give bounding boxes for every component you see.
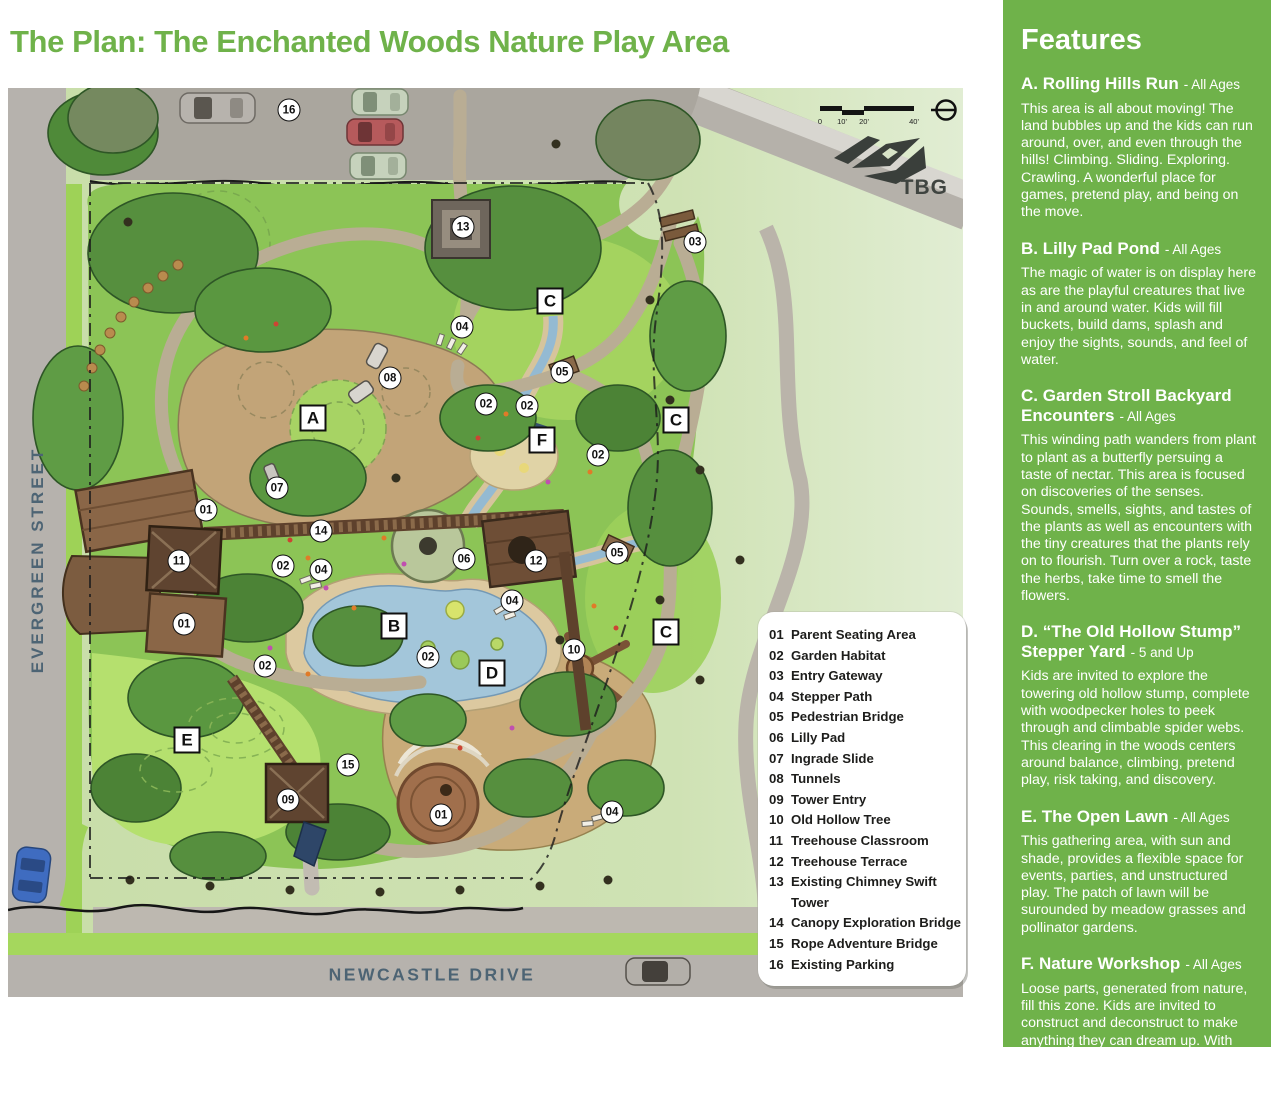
- map-marker-10: 10: [563, 639, 586, 662]
- map-marker-06: 06: [453, 548, 476, 571]
- legend-item-03: 03Entry Gateway: [769, 666, 958, 687]
- feature-description: Kids are invited to explore the towering…: [1021, 668, 1257, 789]
- legend-item-07: 07Ingrade Slide: [769, 749, 958, 770]
- feature-description: This gathering area, with sun and shade,…: [1021, 833, 1257, 937]
- map-marker-05: 05: [551, 361, 574, 384]
- legend-item-06: 06Lilly Pad: [769, 728, 958, 749]
- site-plan-map: EVERGREEN STREET NEWCASTLE DRIVE 010'20'…: [8, 88, 963, 997]
- map-marker-08: 08: [379, 367, 402, 390]
- feature-section-b: B. Lilly Pad Pond- All AgesThe magic of …: [1021, 239, 1257, 369]
- feature-description: This winding path wanders from plant to …: [1021, 432, 1257, 605]
- features-title: Features: [1021, 24, 1257, 57]
- legend-item-number: 06: [769, 728, 791, 749]
- feature-section-d: D. “The Old Hollow Stump” Stepper Yard- …: [1021, 622, 1257, 789]
- map-marker-02: 02: [272, 555, 295, 578]
- legend-item-label: Old Hollow Tree: [791, 810, 958, 831]
- map-marker-11: 11: [168, 550, 191, 573]
- legend-item-label: Parent Seating Area: [791, 625, 958, 646]
- legend-item-12: 12Treehouse Terrace: [769, 852, 958, 873]
- area-label-C: C: [537, 288, 564, 315]
- legend-item-number: 08: [769, 769, 791, 790]
- map-marker-04: 04: [501, 590, 524, 613]
- legend-item-label: Treehouse Classroom: [791, 831, 958, 852]
- legend-item-label: Stepper Path: [791, 687, 958, 708]
- legend-item-number: 13: [769, 872, 791, 913]
- feature-ages: - All Ages: [1120, 409, 1176, 424]
- feature-ages: - All Ages: [1185, 957, 1241, 972]
- legend-item-number: 12: [769, 852, 791, 873]
- map-marker-12: 12: [525, 550, 548, 573]
- legend-item-number: 14: [769, 913, 791, 934]
- feature-section-c: C. Garden Stroll Backyard Encounters- Al…: [1021, 386, 1257, 605]
- feature-section-e: E. The Open Lawn- All AgesThis gathering…: [1021, 807, 1257, 937]
- legend-item-number: 02: [769, 646, 791, 667]
- legend-item-09: 09Tower Entry: [769, 790, 958, 811]
- map-marker-15: 15: [337, 754, 360, 777]
- area-label-B: B: [381, 613, 408, 640]
- legend-item-label: Existing Parking: [791, 955, 958, 976]
- legend-item-14: 14Canopy Exploration Bridge: [769, 913, 958, 934]
- feature-heading: D. “The Old Hollow Stump” Stepper Yard- …: [1021, 622, 1257, 661]
- map-marker-02: 02: [475, 393, 498, 416]
- legend-item-number: 07: [769, 749, 791, 770]
- area-label-E: E: [174, 727, 201, 754]
- feature-name: B. Lilly Pad Pond: [1021, 239, 1160, 258]
- map-marker-05: 05: [606, 542, 629, 565]
- feature-ages: - All Ages: [1184, 77, 1240, 92]
- legend-item-number: 04: [769, 687, 791, 708]
- feature-description: This area is all about moving! The land …: [1021, 101, 1257, 222]
- legend-item-label: Pedestrian Bridge: [791, 707, 958, 728]
- legend-item-13: 13Existing Chimney SwiftTower: [769, 872, 958, 913]
- features-sidebar: Features A. Rolling Hills Run- All AgesT…: [1003, 0, 1271, 1047]
- legend: 01Parent Seating Area02Garden Habitat03E…: [758, 612, 966, 986]
- map-marker-07: 07: [266, 477, 289, 500]
- feature-heading: A. Rolling Hills Run- All Ages: [1021, 74, 1257, 94]
- feature-ages: - 5 and Up: [1131, 645, 1194, 660]
- feature-heading: C. Garden Stroll Backyard Encounters- Al…: [1021, 386, 1257, 425]
- map-marker-02: 02: [254, 655, 277, 678]
- legend-item-label: Existing Chimney SwiftTower: [791, 872, 958, 913]
- map-marker-04: 04: [451, 316, 474, 339]
- map-marker-16: 16: [278, 99, 301, 122]
- legend-item-number: 16: [769, 955, 791, 976]
- map-marker-02: 02: [587, 444, 610, 467]
- legend-item-label: Entry Gateway: [791, 666, 958, 687]
- area-label-A: A: [300, 405, 327, 432]
- legend-item-label: Lilly Pad: [791, 728, 958, 749]
- map-marker-02: 02: [417, 646, 440, 669]
- legend-item-05: 05Pedestrian Bridge: [769, 707, 958, 728]
- legend-item-label: Ingrade Slide: [791, 749, 958, 770]
- legend-item-10: 10Old Hollow Tree: [769, 810, 958, 831]
- legend-item-label: Tower Entry: [791, 790, 958, 811]
- legend-item-label: Garden Habitat: [791, 646, 958, 667]
- map-marker-01: 01: [430, 804, 453, 827]
- legend-item-number: 10: [769, 810, 791, 831]
- legend-item-16: 16Existing Parking: [769, 955, 958, 976]
- feature-name: F. Nature Workshop: [1021, 954, 1180, 973]
- map-marker-04: 04: [601, 801, 624, 824]
- feature-description: The magic of water is on display here as…: [1021, 265, 1257, 369]
- area-label-C: C: [653, 619, 680, 646]
- legend-item-label-line2: Tower: [791, 893, 958, 914]
- area-label-F: F: [529, 427, 556, 454]
- map-marker-04: 04: [310, 559, 333, 582]
- feature-name: A. Rolling Hills Run: [1021, 74, 1179, 93]
- feature-section-a: A. Rolling Hills Run- All AgesThis area …: [1021, 74, 1257, 222]
- legend-items: 01Parent Seating Area02Garden Habitat03E…: [769, 625, 958, 975]
- feature-section-f: F. Nature Workshop- All AgesLoose parts,…: [1021, 954, 1257, 1102]
- legend-item-number: 11: [769, 831, 791, 852]
- map-marker-01: 01: [173, 613, 196, 636]
- feature-name: E. The Open Lawn: [1021, 807, 1168, 826]
- legend-item-label: Canopy Exploration Bridge: [791, 913, 961, 934]
- area-label-D: D: [479, 660, 506, 687]
- legend-item-02: 02Garden Habitat: [769, 646, 958, 667]
- legend-item-number: 03: [769, 666, 791, 687]
- feature-description: Loose parts, generated from nature, fill…: [1021, 981, 1257, 1102]
- feature-ages: - All Ages: [1165, 242, 1221, 257]
- legend-item-04: 04Stepper Path: [769, 687, 958, 708]
- feature-heading: B. Lilly Pad Pond- All Ages: [1021, 239, 1257, 259]
- legend-item-label: Treehouse Terrace: [791, 852, 958, 873]
- legend-item-15: 15Rope Adventure Bridge: [769, 934, 958, 955]
- feature-ages: - All Ages: [1173, 810, 1229, 825]
- legend-item-number: 15: [769, 934, 791, 955]
- map-marker-14: 14: [310, 520, 333, 543]
- legend-item-number: 01: [769, 625, 791, 646]
- feature-heading: F. Nature Workshop- All Ages: [1021, 954, 1257, 974]
- map-marker-13: 13: [452, 216, 475, 239]
- feature-heading: E. The Open Lawn- All Ages: [1021, 807, 1257, 827]
- page-title: The Plan: The Enchanted Woods Nature Pla…: [10, 24, 729, 60]
- map-marker-01: 01: [195, 499, 218, 522]
- legend-item-01: 01Parent Seating Area: [769, 625, 958, 646]
- features-sections: A. Rolling Hills Run- All AgesThis area …: [1021, 74, 1257, 1102]
- legend-item-number: 05: [769, 707, 791, 728]
- legend-item-08: 08Tunnels: [769, 769, 958, 790]
- legend-item-number: 09: [769, 790, 791, 811]
- page: { "page": { "title": "The Plan: The Ench…: [0, 0, 1271, 1047]
- map-marker-02: 02: [516, 395, 539, 418]
- legend-item-11: 11Treehouse Classroom: [769, 831, 958, 852]
- legend-item-label: Tunnels: [791, 769, 958, 790]
- legend-item-label: Rope Adventure Bridge: [791, 934, 958, 955]
- map-marker-03: 03: [684, 231, 707, 254]
- map-marker-09: 09: [277, 789, 300, 812]
- area-label-C: C: [663, 407, 690, 434]
